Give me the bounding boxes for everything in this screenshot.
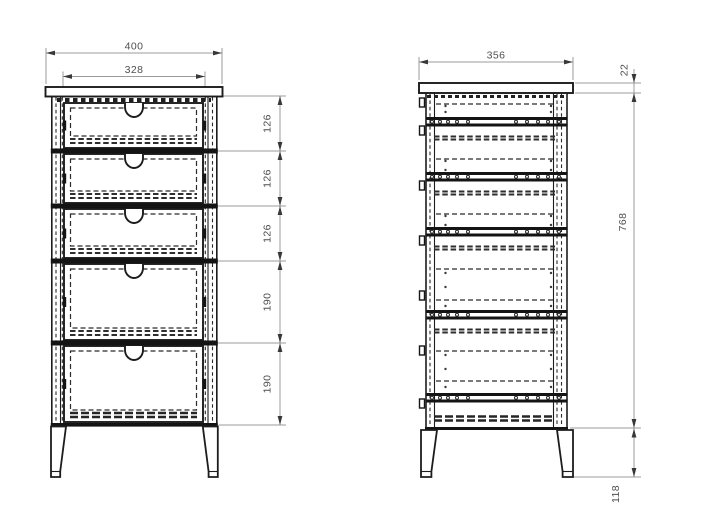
side-top-board	[419, 83, 573, 93]
dim-label-carcass-height: 768	[617, 213, 629, 232]
drawer-handle-cutout	[125, 264, 143, 278]
side-bottom-rail	[425, 427, 568, 430]
dim-label-drawer-3: 126	[262, 224, 274, 243]
technical-drawing-canvas: 400 328 356 126 126 126 190 190 22 768 1…	[0, 0, 701, 532]
drawer-side-latch	[203, 379, 206, 389]
front-right-leg	[203, 427, 218, 478]
dim-label-leg-height: 118	[610, 485, 622, 503]
side-drawer-unit-4	[427, 269, 568, 333]
drawer-side-latch	[63, 229, 66, 239]
drawer-handle-cutout	[125, 154, 143, 168]
drawer-side-latch	[203, 229, 206, 239]
dim-label-top-thickness: 22	[619, 64, 631, 76]
drawer-front-5	[63, 346, 206, 422]
side-front-leg	[421, 430, 437, 477]
drawer-handle-cutout	[125, 346, 143, 360]
side-drawer-unit-2	[427, 159, 568, 195]
rail-screws	[431, 396, 561, 399]
front-rail	[51, 341, 218, 346]
front-rail	[51, 149, 218, 154]
drawer-side-latch	[203, 174, 206, 184]
drawer-handle-cutout	[125, 103, 143, 117]
dim-label-width-inner: 328	[125, 64, 144, 76]
drawer-handle-cutout	[125, 209, 143, 223]
drawer-side-latch	[63, 379, 66, 389]
drawer-front-3	[63, 209, 206, 258]
rail-screws	[431, 230, 561, 233]
drawer-front-2	[63, 154, 206, 203]
dim-label-drawer-1: 126	[262, 114, 274, 133]
rail-screws	[431, 120, 561, 123]
drawer-side-latch	[203, 297, 206, 307]
drawer-side-latch	[203, 121, 206, 131]
drawer-side-latch	[63, 297, 66, 307]
dim-label-drawer-2: 126	[262, 169, 274, 188]
front-view	[46, 87, 223, 477]
side-carcass	[426, 93, 567, 427]
rail-screws	[431, 175, 561, 178]
dim-label-drawer-5: 190	[262, 375, 274, 394]
dim-label-depth: 356	[487, 50, 506, 62]
rail-screws	[431, 313, 561, 316]
front-rail	[51, 259, 218, 264]
side-view	[419, 83, 573, 477]
front-left-leg	[51, 427, 66, 478]
side-drawer-unit-3	[427, 214, 568, 250]
drawer-front-4	[63, 264, 206, 340]
side-drawer-unit-5	[427, 351, 568, 421]
drawer-side-latch	[63, 121, 66, 131]
dim-label-drawer-4: 190	[262, 293, 274, 312]
front-top-board	[46, 87, 223, 97]
drawer-side-latch	[63, 174, 66, 184]
dim-label-width-total: 400	[125, 41, 144, 53]
drawer-front-1	[63, 103, 206, 148]
side-mounting-clips	[420, 98, 425, 408]
side-back-leg	[557, 430, 573, 477]
front-rail	[51, 204, 218, 209]
chest-of-drawers-drawing: 400 328 356 126 126 126 190 190 22 768 1…	[0, 0, 701, 532]
side-drawer-unit-1	[427, 104, 568, 140]
front-bottom-rail	[51, 423, 218, 427]
